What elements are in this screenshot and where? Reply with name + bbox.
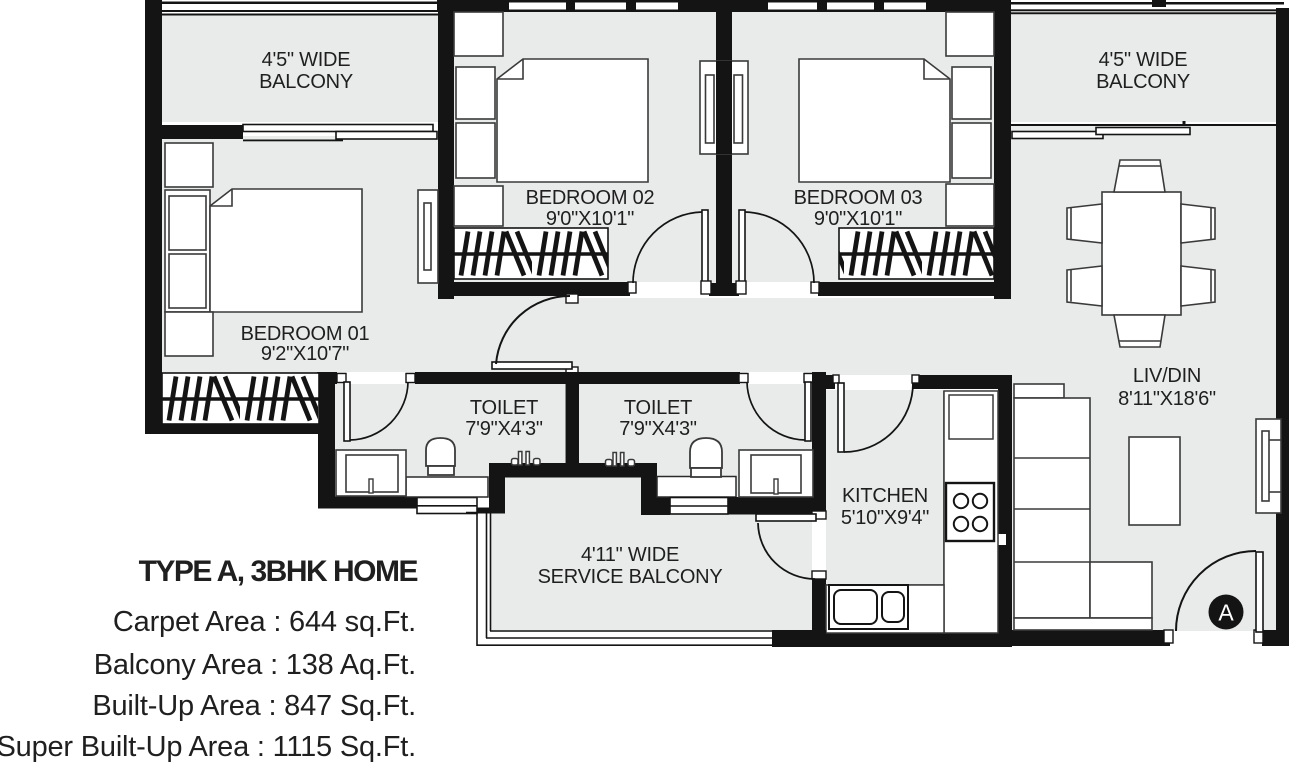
svg-text:4'5" WIDE: 4'5" WIDE <box>1099 49 1188 71</box>
svg-text:5'10"X9'4": 5'10"X9'4" <box>841 507 929 529</box>
svg-text:TYPE A, 3BHK HOME: TYPE A, 3BHK HOME <box>139 555 418 588</box>
svg-text:TOILET: TOILET <box>470 397 538 419</box>
svg-text:8'11"X18'6": 8'11"X18'6" <box>1118 388 1216 410</box>
svg-text:7'9"X4'3": 7'9"X4'3" <box>465 418 543 440</box>
svg-text:9'0"X10'1": 9'0"X10'1" <box>814 208 902 230</box>
svg-text:Super Built-Up Area : 1115 Sq.: Super Built-Up Area : 1115 Sq.Ft. <box>0 731 416 763</box>
svg-text:4'5" WIDE: 4'5" WIDE <box>262 49 351 71</box>
svg-text:TOILET: TOILET <box>624 397 692 419</box>
svg-text:BEDROOM 02: BEDROOM 02 <box>526 187 655 209</box>
svg-text:Built-Up Area : 847 Sq.Ft.: Built-Up Area : 847 Sq.Ft. <box>92 690 416 722</box>
svg-text:BALCONY: BALCONY <box>1096 71 1190 93</box>
svg-text:BEDROOM 01: BEDROOM 01 <box>241 323 370 345</box>
svg-text:BALCONY: BALCONY <box>259 71 353 93</box>
svg-text:KITCHEN: KITCHEN <box>842 485 928 507</box>
svg-text:SERVICE BALCONY: SERVICE BALCONY <box>538 566 723 588</box>
svg-text:Balcony Area : 138 Aq.Ft.: Balcony Area : 138 Aq.Ft. <box>94 649 416 681</box>
svg-text:7'9"X4'3": 7'9"X4'3" <box>619 418 697 440</box>
svg-text:LIV/DIN: LIV/DIN <box>1133 365 1201 387</box>
svg-text:BEDROOM 03: BEDROOM 03 <box>794 187 923 209</box>
svg-text:Carpet Area : 644 sq.Ft.: Carpet Area : 644 sq.Ft. <box>113 606 416 638</box>
svg-text:9'2"X10'7": 9'2"X10'7" <box>261 343 349 365</box>
svg-text:9'0"X10'1": 9'0"X10'1" <box>546 208 634 230</box>
svg-text:A: A <box>1218 600 1234 626</box>
svg-text:4'11" WIDE: 4'11" WIDE <box>581 544 679 566</box>
